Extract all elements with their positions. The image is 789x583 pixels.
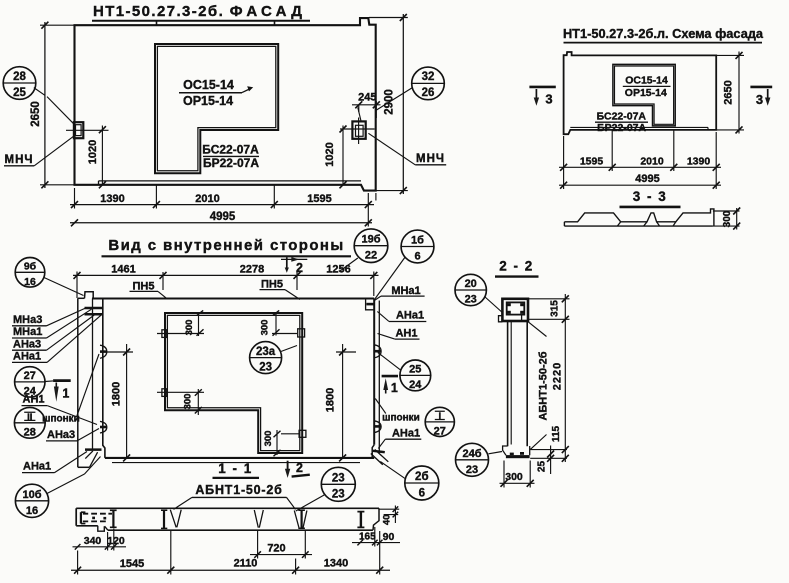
svg-text:1461: 1461	[111, 263, 135, 275]
svg-text:ОР15-14: ОР15-14	[183, 94, 233, 108]
svg-text:1595: 1595	[307, 193, 331, 205]
svg-text:24: 24	[409, 379, 422, 391]
svg-text:МНа1: МНа1	[391, 285, 420, 297]
svg-text:1340: 1340	[324, 558, 348, 570]
svg-text:300: 300	[184, 320, 195, 336]
svg-text:10б: 10б	[22, 489, 41, 501]
svg-text:1: 1	[391, 381, 398, 395]
svg-text:28: 28	[24, 426, 36, 438]
svg-text:БР22-07А: БР22-07А	[203, 156, 259, 170]
svg-text:165: 165	[359, 532, 376, 543]
svg-text:16: 16	[24, 276, 36, 288]
svg-text:II: II	[27, 412, 32, 423]
svg-text:1020: 1020	[87, 140, 99, 164]
svg-text:АБНТ1-50-2б: АБНТ1-50-2б	[538, 351, 550, 420]
svg-text:26: 26	[422, 87, 435, 99]
svg-text:МНЧ: МНЧ	[416, 153, 445, 165]
svg-text:АНа1: АНа1	[392, 427, 420, 439]
svg-text:25: 25	[536, 461, 547, 473]
svg-text:АНа1: АНа1	[13, 351, 41, 363]
svg-text:300: 300	[183, 394, 194, 410]
svg-text:АН1: АН1	[23, 394, 45, 406]
svg-text:2650: 2650	[722, 80, 734, 104]
svg-text:МНа3: МНа3	[13, 314, 42, 326]
svg-text:I: I	[438, 411, 441, 422]
svg-text:300: 300	[722, 210, 733, 227]
svg-text:27: 27	[24, 370, 36, 382]
svg-text:АНа3: АНа3	[47, 429, 75, 441]
svg-text:1545: 1545	[120, 558, 144, 570]
svg-text:НТ1-50.27.3-2б.л. Схема фасада: НТ1-50.27.3-2б.л. Схема фасада	[563, 26, 764, 41]
svg-text:2: 2	[296, 261, 303, 275]
svg-text:АН1: АН1	[395, 327, 417, 339]
svg-text:2 - 2: 2 - 2	[499, 259, 534, 274]
svg-text:3 - 3: 3 - 3	[633, 189, 668, 204]
svg-text:2220: 2220	[551, 362, 563, 390]
svg-text:НТ1-50.27.3-2б. ФАСАД: НТ1-50.27.3-2б. ФАСАД	[93, 3, 306, 20]
svg-text:2010: 2010	[640, 155, 664, 167]
svg-text:Вид с внутренней стороны: Вид с внутренней стороны	[108, 237, 344, 254]
svg-text:2б: 2б	[415, 471, 429, 483]
svg-text:1б: 1б	[411, 234, 424, 246]
svg-text:2010: 2010	[195, 193, 219, 205]
svg-text:1 - 1: 1 - 1	[218, 461, 253, 476]
svg-text:шпонки: шпонки	[42, 414, 80, 425]
svg-text:27: 27	[434, 425, 446, 437]
svg-text:300: 300	[260, 320, 271, 336]
svg-text:19б: 19б	[361, 234, 380, 246]
svg-text:2110: 2110	[234, 558, 258, 570]
svg-text:90: 90	[383, 531, 395, 543]
svg-text:ПН5: ПН5	[261, 279, 283, 291]
svg-text:25: 25	[13, 87, 26, 99]
svg-text:АНа1: АНа1	[396, 310, 424, 322]
svg-text:32: 32	[422, 71, 435, 83]
svg-text:20: 20	[465, 278, 477, 290]
svg-text:9б: 9б	[24, 260, 37, 272]
svg-text:МНЧ: МНЧ	[5, 154, 34, 166]
svg-text:4995: 4995	[210, 211, 236, 223]
svg-text:АНа3: АНа3	[13, 338, 41, 350]
svg-text:6: 6	[419, 487, 425, 499]
svg-text:1390: 1390	[687, 155, 711, 167]
svg-text:720: 720	[267, 542, 285, 554]
svg-text:300: 300	[263, 431, 274, 447]
svg-text:25: 25	[409, 363, 421, 375]
svg-text:3: 3	[545, 92, 552, 107]
svg-text:120: 120	[107, 535, 125, 547]
svg-text:БС22-07А: БС22-07А	[597, 110, 647, 122]
svg-text:16: 16	[26, 505, 38, 517]
svg-text:ОС15-14: ОС15-14	[625, 74, 668, 86]
svg-text:шпонки: шпонки	[382, 412, 420, 423]
svg-text:6: 6	[414, 250, 420, 262]
svg-text:БС22-07А: БС22-07А	[202, 143, 259, 157]
svg-text:40: 40	[382, 515, 393, 526]
svg-text:22: 22	[365, 250, 377, 262]
svg-text:115: 115	[551, 425, 562, 442]
svg-text:ОР15-14: ОР15-14	[625, 87, 667, 99]
svg-text:БР22-07А: БР22-07А	[597, 122, 646, 134]
svg-text:1020: 1020	[324, 142, 336, 166]
svg-text:АБНТ1-50-2б: АБНТ1-50-2б	[195, 483, 282, 497]
svg-text:1595: 1595	[580, 155, 604, 167]
svg-text:1800: 1800	[325, 388, 337, 412]
svg-text:МНа1: МНа1	[13, 326, 42, 338]
svg-text:315: 315	[550, 300, 561, 317]
svg-text:2650: 2650	[30, 101, 42, 127]
svg-text:23: 23	[332, 472, 345, 484]
svg-text:28: 28	[13, 71, 26, 83]
svg-text:23: 23	[259, 361, 272, 373]
svg-text:23: 23	[332, 489, 345, 501]
svg-text:2278: 2278	[240, 263, 264, 275]
svg-text:1: 1	[62, 387, 69, 401]
svg-text:ОС15-14: ОС15-14	[183, 78, 234, 92]
svg-text:1800: 1800	[111, 382, 123, 406]
svg-text:24б: 24б	[462, 448, 481, 460]
svg-text:340: 340	[84, 535, 102, 547]
svg-text:АНа1: АНа1	[23, 461, 51, 473]
svg-text:23: 23	[466, 464, 478, 476]
svg-text:23а: 23а	[256, 346, 276, 358]
svg-text:3: 3	[756, 92, 763, 107]
svg-text:23: 23	[465, 294, 477, 306]
svg-text:4995: 4995	[635, 173, 659, 185]
svg-text:1390: 1390	[100, 193, 124, 205]
svg-text:2: 2	[296, 461, 303, 475]
svg-text:300: 300	[505, 471, 523, 483]
